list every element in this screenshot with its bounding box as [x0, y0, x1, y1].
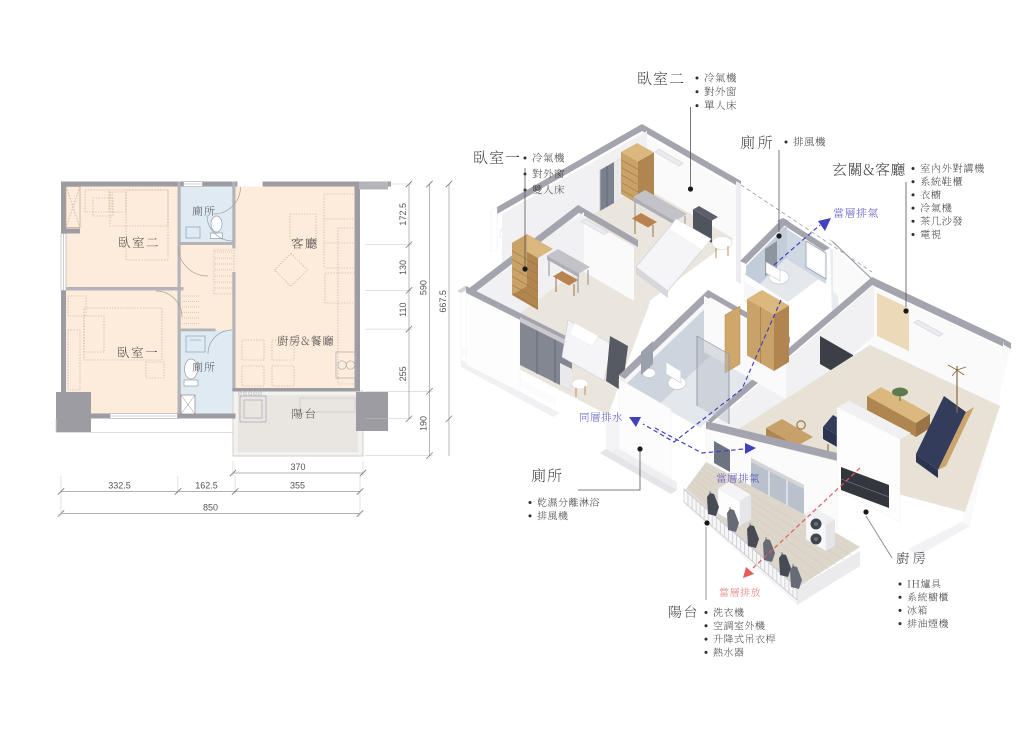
svg-text:370: 370 — [290, 462, 305, 472]
svg-text:190: 190 — [419, 416, 429, 431]
svg-text:667.5: 667.5 — [438, 290, 448, 313]
svg-text:172.5: 172.5 — [398, 203, 408, 226]
svg-text:255: 255 — [398, 366, 408, 381]
svg-text:850: 850 — [203, 503, 218, 513]
svg-text:590: 590 — [419, 280, 429, 295]
svg-text:130: 130 — [398, 260, 408, 275]
svg-text:355: 355 — [290, 481, 305, 491]
svg-text:332.5: 332.5 — [108, 481, 131, 491]
svg-text:110: 110 — [398, 303, 408, 317]
svg-text:162.5: 162.5 — [195, 481, 218, 491]
